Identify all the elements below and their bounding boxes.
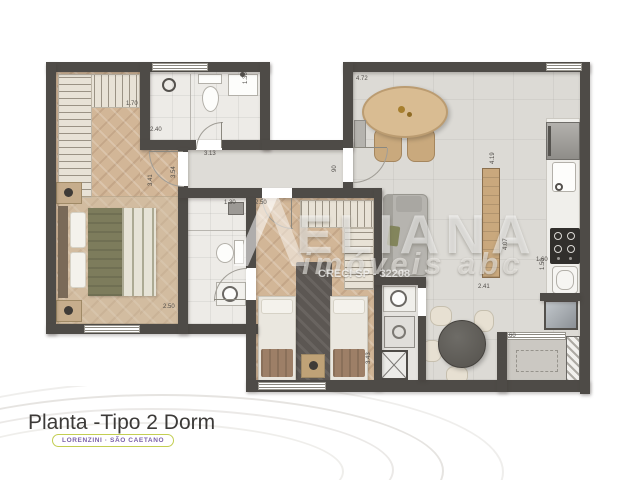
hall-floor	[186, 150, 345, 190]
window	[84, 325, 140, 333]
door-leaf	[149, 151, 183, 152]
wall	[46, 324, 258, 334]
fridge-handle	[548, 126, 551, 156]
double-bed-blanket	[88, 208, 122, 296]
wall	[46, 62, 56, 334]
tv-panel	[544, 300, 578, 330]
wall	[540, 293, 580, 301]
bed-pillow	[70, 252, 86, 288]
shower-divider	[190, 74, 191, 140]
window	[258, 382, 326, 390]
sliding-door	[507, 332, 566, 340]
washer-door	[392, 325, 406, 339]
knob	[557, 257, 560, 260]
burner	[554, 245, 562, 253]
burner	[567, 245, 575, 253]
door-opening	[246, 268, 256, 300]
wardrobe-bedroom1-left	[58, 74, 92, 198]
burner	[567, 232, 575, 240]
bed-pillow	[70, 212, 86, 248]
lamp	[64, 306, 73, 315]
bed-pillow	[261, 299, 293, 314]
toilet-tank	[198, 74, 222, 84]
lamp	[309, 361, 318, 370]
tub-basin	[556, 270, 574, 290]
project-badge: LORENZINI · SÃO CAETANO	[52, 434, 174, 447]
lamp	[64, 188, 73, 197]
page-title: Planta -Tipo 2 Dorm	[28, 411, 215, 435]
dining-table	[362, 86, 448, 138]
balcony-outline	[516, 350, 558, 372]
bed-blanket	[333, 349, 365, 377]
door-opening	[343, 148, 353, 182]
bathroom-sink	[228, 74, 258, 96]
shaft-cross-icon	[382, 352, 406, 378]
cooktop	[550, 228, 580, 264]
wall	[260, 62, 270, 148]
door-leaf	[221, 122, 222, 148]
floor-plan-page: 1.702.403.133.543.411.36901.302.502.504.…	[0, 0, 640, 480]
burner	[554, 232, 562, 240]
table-decor	[407, 112, 412, 117]
wall	[262, 140, 353, 150]
entry-cabinet	[354, 120, 366, 148]
wall	[580, 62, 590, 394]
shower-head	[162, 78, 176, 92]
laundry-round-sink	[390, 290, 407, 307]
faucet	[240, 72, 245, 77]
table-decor	[398, 106, 405, 113]
wall	[140, 62, 150, 148]
kitchen-faucet	[555, 183, 563, 191]
window	[152, 63, 208, 71]
watermark-license: CRECI SP - 32208	[318, 268, 410, 280]
fridge	[546, 122, 580, 160]
door-leaf	[353, 147, 387, 148]
bed-pillow	[333, 299, 365, 314]
door-leaf	[214, 299, 246, 300]
double-bed-duvet	[122, 208, 156, 296]
balcony-glass-rail	[566, 336, 580, 382]
knob	[569, 257, 572, 260]
window	[546, 63, 582, 71]
round-table	[438, 320, 486, 368]
door-opening	[418, 288, 426, 316]
duct-shaft	[380, 350, 408, 380]
wall	[497, 332, 507, 392]
bed-blanket	[261, 349, 293, 377]
double-bed-headboard	[58, 206, 68, 298]
